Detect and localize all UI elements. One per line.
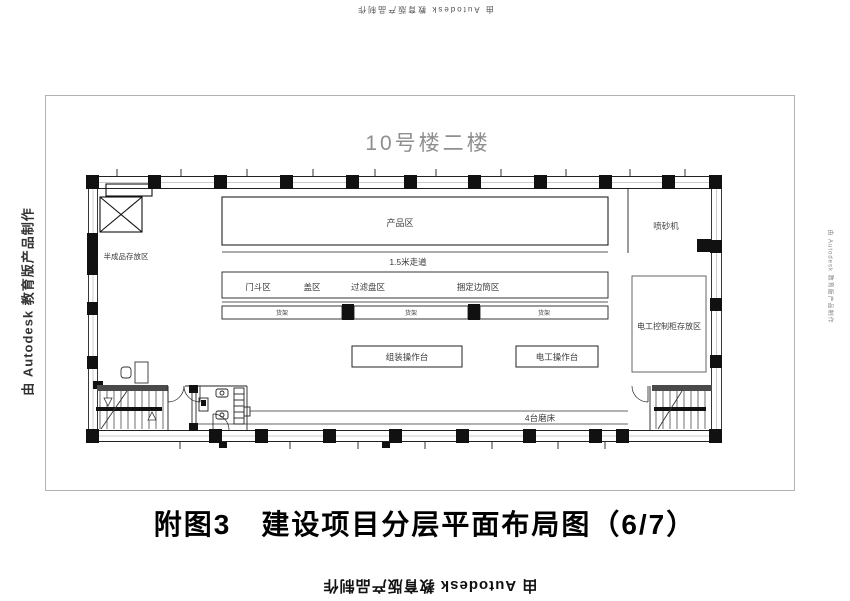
zone-label-filter: 过滤盘区 xyxy=(351,282,386,292)
building-walls xyxy=(88,176,722,442)
zone-row-block: 门斗区 盖区 过滤盘区 捆定边筒区 xyxy=(222,272,608,302)
shelf-label-1: 货架 xyxy=(276,309,288,317)
desk-chair xyxy=(121,362,148,383)
grinders-label: 4台磨床 xyxy=(525,413,556,423)
grinder-row: 4台磨床 xyxy=(196,411,628,424)
sandblaster-label: 喷砂机 xyxy=(653,221,679,231)
zone-label-binding: 捆定边筒区 xyxy=(457,282,500,292)
control-cabinet-label: 电工控制柜存放区 xyxy=(637,321,701,331)
sheet-caption: 附图3 建设项目分层平面布局图（6/7） xyxy=(0,503,850,543)
walkway-label: 1.5米走道 xyxy=(389,257,427,267)
wall-columns xyxy=(86,175,722,443)
stairs-left xyxy=(96,385,168,430)
stairs-right xyxy=(632,385,712,430)
semi-finished-storage-label: 半成品存放区 xyxy=(104,251,149,261)
assembly-bench-label: 组装操作台 xyxy=(386,352,429,362)
product-area-label: 产品区 xyxy=(386,217,413,228)
zone-label-door: 门斗区 xyxy=(245,282,271,292)
product-area-block: 产品区 xyxy=(222,197,608,252)
zone-label-cover: 盖区 xyxy=(303,282,321,292)
shelf-label-3: 货架 xyxy=(538,309,550,317)
plan-title: 10号楼二楼 xyxy=(365,132,490,155)
electrician-bench: 电工操作台 xyxy=(516,346,598,367)
elevator xyxy=(100,184,152,232)
window-ticks xyxy=(117,169,685,449)
assembly-bench: 组装操作台 xyxy=(352,346,462,367)
control-cabinet-area: 电工控制柜存放区 xyxy=(632,276,706,372)
cad-sheet: 由 Autodesk 教育版产品制作 由 Autodesk 教育版产品制作 由 … xyxy=(0,0,850,601)
sandblaster-area: 喷砂机 xyxy=(628,189,711,253)
electrician-bench-label: 电工操作台 xyxy=(536,352,579,362)
shelf-label-2: 货架 xyxy=(405,309,417,317)
shelf-row: 货架 货架 货架 xyxy=(222,304,608,320)
